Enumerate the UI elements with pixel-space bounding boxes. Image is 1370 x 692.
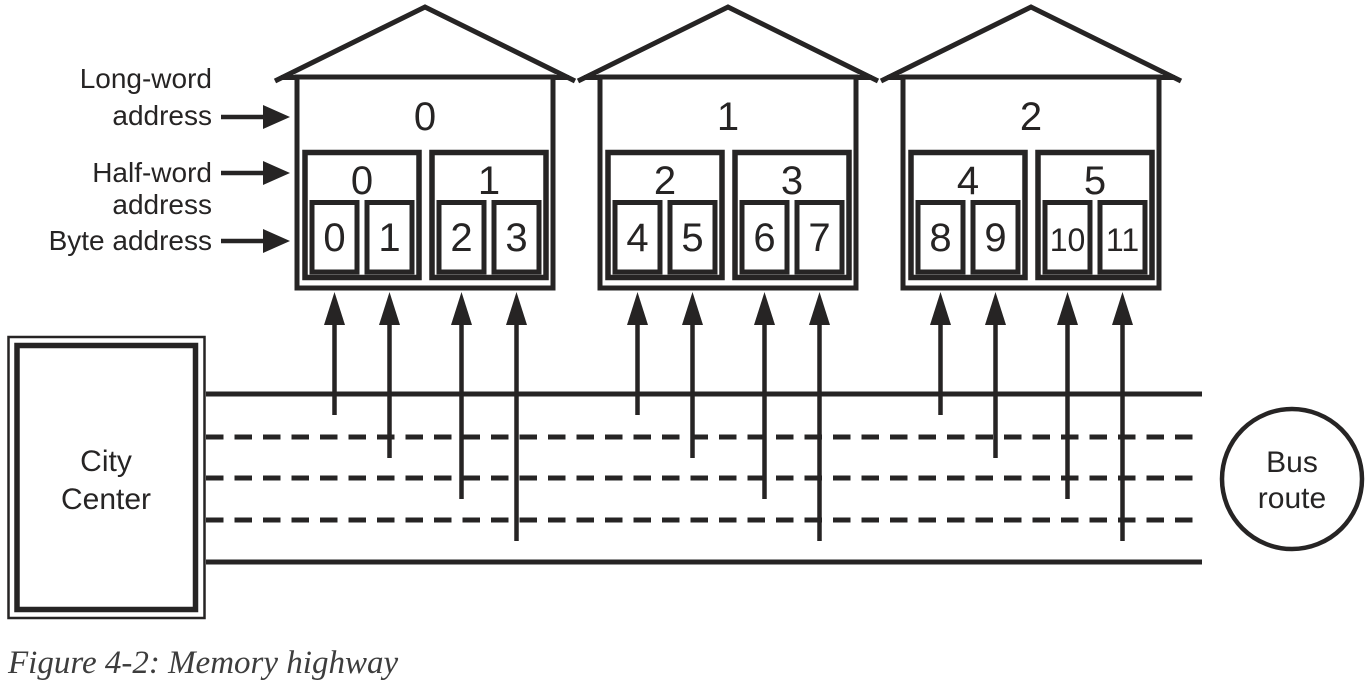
long-word-number-2: 2: [1020, 95, 1042, 139]
byte-box-7: 7: [797, 203, 842, 273]
arrow-byte-5-head-icon: [682, 292, 703, 325]
half-word-number-1: 1: [478, 159, 500, 203]
house-long-word-2: 248951011: [881, 7, 1181, 288]
bus-route-label-line1: Bus: [1266, 446, 1318, 479]
memory-highway-diagram: 00011231245367248951011CityCenterBusrout…: [0, 0, 1370, 640]
house-0-roof-icon: [275, 7, 575, 81]
long-word-address-arrow: [221, 105, 290, 129]
half-word-number-3: 3: [781, 159, 803, 203]
half-word-number-2: 2: [654, 159, 676, 203]
byte-number-5: 5: [681, 216, 703, 260]
arrow-byte-7: [809, 292, 830, 541]
byte-number-2: 2: [450, 216, 472, 260]
long-word-number-1: 1: [717, 95, 739, 139]
arrow-byte-7-head-icon: [809, 292, 830, 325]
bus-route-circle: [1222, 409, 1362, 549]
arrow-byte-8-head-icon: [930, 292, 951, 325]
long-word-number-0: 0: [414, 95, 436, 139]
byte-box-11: 11: [1100, 203, 1145, 273]
city-center-label-line2: Center: [61, 483, 151, 516]
byte-number-0: 0: [323, 216, 345, 260]
bus-route-label-line2: route: [1258, 482, 1326, 515]
byte-number-8: 8: [929, 216, 951, 260]
half-word-box-1: 123: [432, 153, 546, 278]
arrow-byte-5: [682, 292, 703, 458]
arrow-byte-11: [1112, 292, 1133, 541]
long-word-address-label-line2: address: [112, 100, 212, 131]
byte-number-9: 9: [984, 216, 1006, 260]
bus-route-node: Busroute: [1222, 409, 1362, 549]
byte-box-10: 10: [1045, 203, 1090, 273]
half-word-number-0: 0: [351, 159, 373, 203]
byte-number-4: 4: [626, 216, 648, 260]
byte-box-6: 6: [742, 203, 787, 273]
byte-box-8: 8: [918, 203, 963, 273]
arrow-byte-3-head-icon: [506, 292, 527, 325]
byte-number-1: 1: [378, 216, 400, 260]
arrow-byte-4: [627, 292, 648, 415]
arrow-byte-9: [985, 292, 1006, 458]
half-word-box-2: 245: [608, 153, 722, 278]
byte-number-10: 10: [1050, 222, 1086, 258]
half-word-address-arrow: [221, 161, 290, 185]
arrow-byte-8: [930, 292, 951, 415]
arrow-byte-2-head-icon: [451, 292, 472, 325]
long-word-address-arrow-head-icon: [263, 105, 290, 129]
arrow-byte-9-head-icon: [985, 292, 1006, 325]
byte-box-2: 2: [439, 203, 484, 273]
arrow-byte-6-head-icon: [754, 292, 775, 325]
byte-number-7: 7: [808, 216, 830, 260]
arrow-byte-0-head-icon: [324, 292, 345, 325]
arrow-byte-11-head-icon: [1112, 292, 1133, 325]
city-center-box: CityCenter: [9, 337, 205, 618]
byte-box-3: 3: [494, 203, 539, 273]
half-word-box-5: 51011: [1038, 153, 1152, 278]
highway-lanes: [206, 394, 1202, 562]
half-word-box-4: 489: [911, 153, 1025, 278]
figure-page: 00011231245367248951011CityCenterBusrout…: [0, 0, 1370, 692]
arrow-byte-1: [379, 292, 400, 458]
byte-box-4: 4: [615, 203, 660, 273]
arrow-byte-0: [324, 292, 345, 415]
half-word-box-3: 367: [735, 153, 849, 278]
byte-box-1: 1: [367, 203, 412, 273]
house-2-roof-icon: [881, 7, 1181, 81]
half-word-number-4: 4: [957, 159, 979, 203]
byte-box-5: 5: [670, 203, 715, 273]
byte-number-6: 6: [753, 216, 775, 260]
half-word-address-arrow-head-icon: [263, 161, 290, 185]
byte-arrows: [324, 292, 1133, 541]
house-long-word-1: 1245367: [578, 7, 878, 288]
half-word-address-label-line1: Half-word: [92, 157, 212, 188]
byte-address-label-line1: Byte address: [49, 225, 212, 256]
half-word-box-0: 001: [305, 153, 419, 278]
house-long-word-0: 0001123: [275, 7, 575, 288]
arrow-byte-1-head-icon: [379, 292, 400, 325]
arrow-byte-10-head-icon: [1057, 292, 1078, 325]
half-word-number-5: 5: [1084, 159, 1106, 203]
byte-number-3: 3: [505, 216, 527, 260]
arrow-byte-4-head-icon: [627, 292, 648, 325]
figure-caption: Figure 4-2: Memory highway: [8, 645, 398, 681]
address-labels: Long-wordaddressHalf-wordaddressByte add…: [49, 63, 290, 256]
byte-box-9: 9: [973, 203, 1018, 273]
long-word-address-label-line1: Long-word: [80, 63, 212, 94]
byte-address-arrow-head-icon: [263, 229, 290, 253]
byte-address-arrow: [221, 229, 290, 253]
byte-number-11: 11: [1106, 222, 1139, 258]
city-center-label-line1: City: [80, 445, 132, 478]
arrow-byte-3: [506, 292, 527, 541]
house-1-roof-icon: [578, 7, 878, 81]
byte-box-0: 0: [312, 203, 357, 273]
half-word-address-label-line2: address: [112, 189, 212, 220]
